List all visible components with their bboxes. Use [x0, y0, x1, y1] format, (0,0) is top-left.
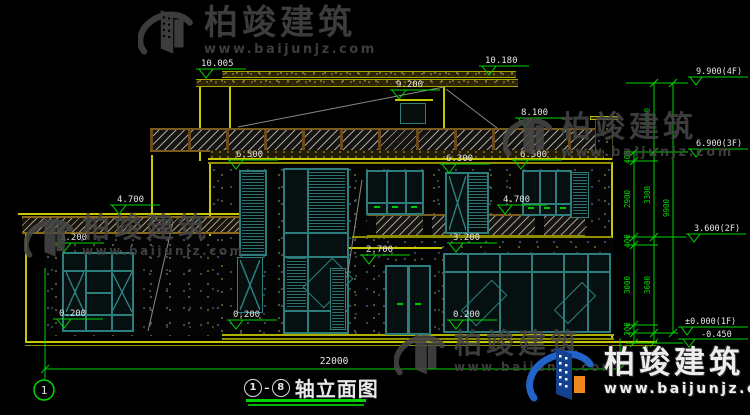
level-label: 0.200 [59, 309, 86, 319]
watermark-top: 柏竣建筑 www.baijunjz.com [138, 6, 377, 64]
drawing-title: 1 - 8 轴立面图 [244, 373, 379, 402]
dim-9900-total: 9900 [662, 198, 671, 217]
title-underline-thin [248, 404, 364, 406]
dim-200: 200 [623, 322, 632, 336]
watermark-brand-url: www.baijunjz.com [204, 43, 377, 56]
dim-3000: 3000 [623, 275, 632, 294]
brand-logo-icon [394, 330, 448, 384]
level-label: 4.700 [503, 195, 530, 205]
dim-2900: 2900 [623, 189, 632, 208]
axis-bubble: 1 [34, 380, 54, 400]
watermark-right: 柏竣建筑 www.baijunjz.com [503, 113, 734, 165]
floor-label-1f: ±0.000(1F) [685, 317, 736, 327]
axis-end-bubble: 8 [272, 379, 290, 397]
floor-label-2f: 3.600(2F) [694, 224, 740, 234]
dim-400: 400 [623, 234, 632, 248]
watermark-brand-name: 柏竣建筑 [82, 214, 245, 242]
level-label: 2.700 [366, 245, 393, 255]
watermark-brand-url: www.baijunjz.com [604, 382, 750, 396]
drawing-title-text: 轴立面图 [295, 373, 379, 402]
level-label: 3.200 [453, 233, 480, 243]
watermark-brand-url: www.baijunjz.com [82, 245, 245, 257]
dim-3600: 3600 [643, 275, 652, 294]
axis-separator: - [264, 378, 270, 397]
floor-label-4f: 9.900(4F) [696, 67, 742, 77]
level-label: 4.700 [117, 195, 144, 205]
level-label: 9.200 [396, 80, 423, 90]
title-underline [246, 399, 366, 402]
level-label: 6.500 [236, 150, 263, 160]
level-label: 0.200 [233, 310, 260, 320]
brand-logo-icon [138, 6, 196, 64]
floor-label-below-grade: -0.450 [701, 330, 732, 340]
level-label: 0.200 [453, 310, 480, 320]
watermark-bottom-right-color: 柏竣建筑 www.baijunjz.com [526, 342, 750, 414]
level-label: 10.180 [485, 56, 518, 66]
level-markers: 10.005 10.180 9.200 8.100 6.500 6.500 6.… [53, 56, 565, 329]
cad-elevation-drawing: 10.005 10.180 9.200 8.100 6.500 6.500 6.… [0, 0, 750, 415]
watermark-left: 柏竣建筑 www.baijunjz.com [24, 214, 245, 266]
leader-lines [148, 87, 497, 331]
watermark-brand-name: 柏竣建筑 [604, 348, 750, 379]
watermark-brand-url: www.baijunjz.com [561, 146, 734, 159]
brand-logo-color-icon [526, 342, 598, 414]
dim-3300: 3300 [643, 185, 652, 204]
brand-logo-icon [503, 113, 555, 165]
watermark-brand-name: 柏竣建筑 [561, 113, 734, 143]
floor-level-markers: 9.900(4F) 6.900(3F) 3.600(2F) ±0.000(1F)… [678, 67, 748, 347]
axis-bubble-number: 1 [41, 384, 48, 397]
watermark-brand-name: 柏竣建筑 [204, 6, 377, 40]
dim-22000-total: 22000 [320, 356, 349, 367]
level-label: 6.300 [446, 154, 473, 164]
brand-logo-icon [24, 214, 76, 266]
axis-start-bubble: 1 [244, 379, 262, 397]
